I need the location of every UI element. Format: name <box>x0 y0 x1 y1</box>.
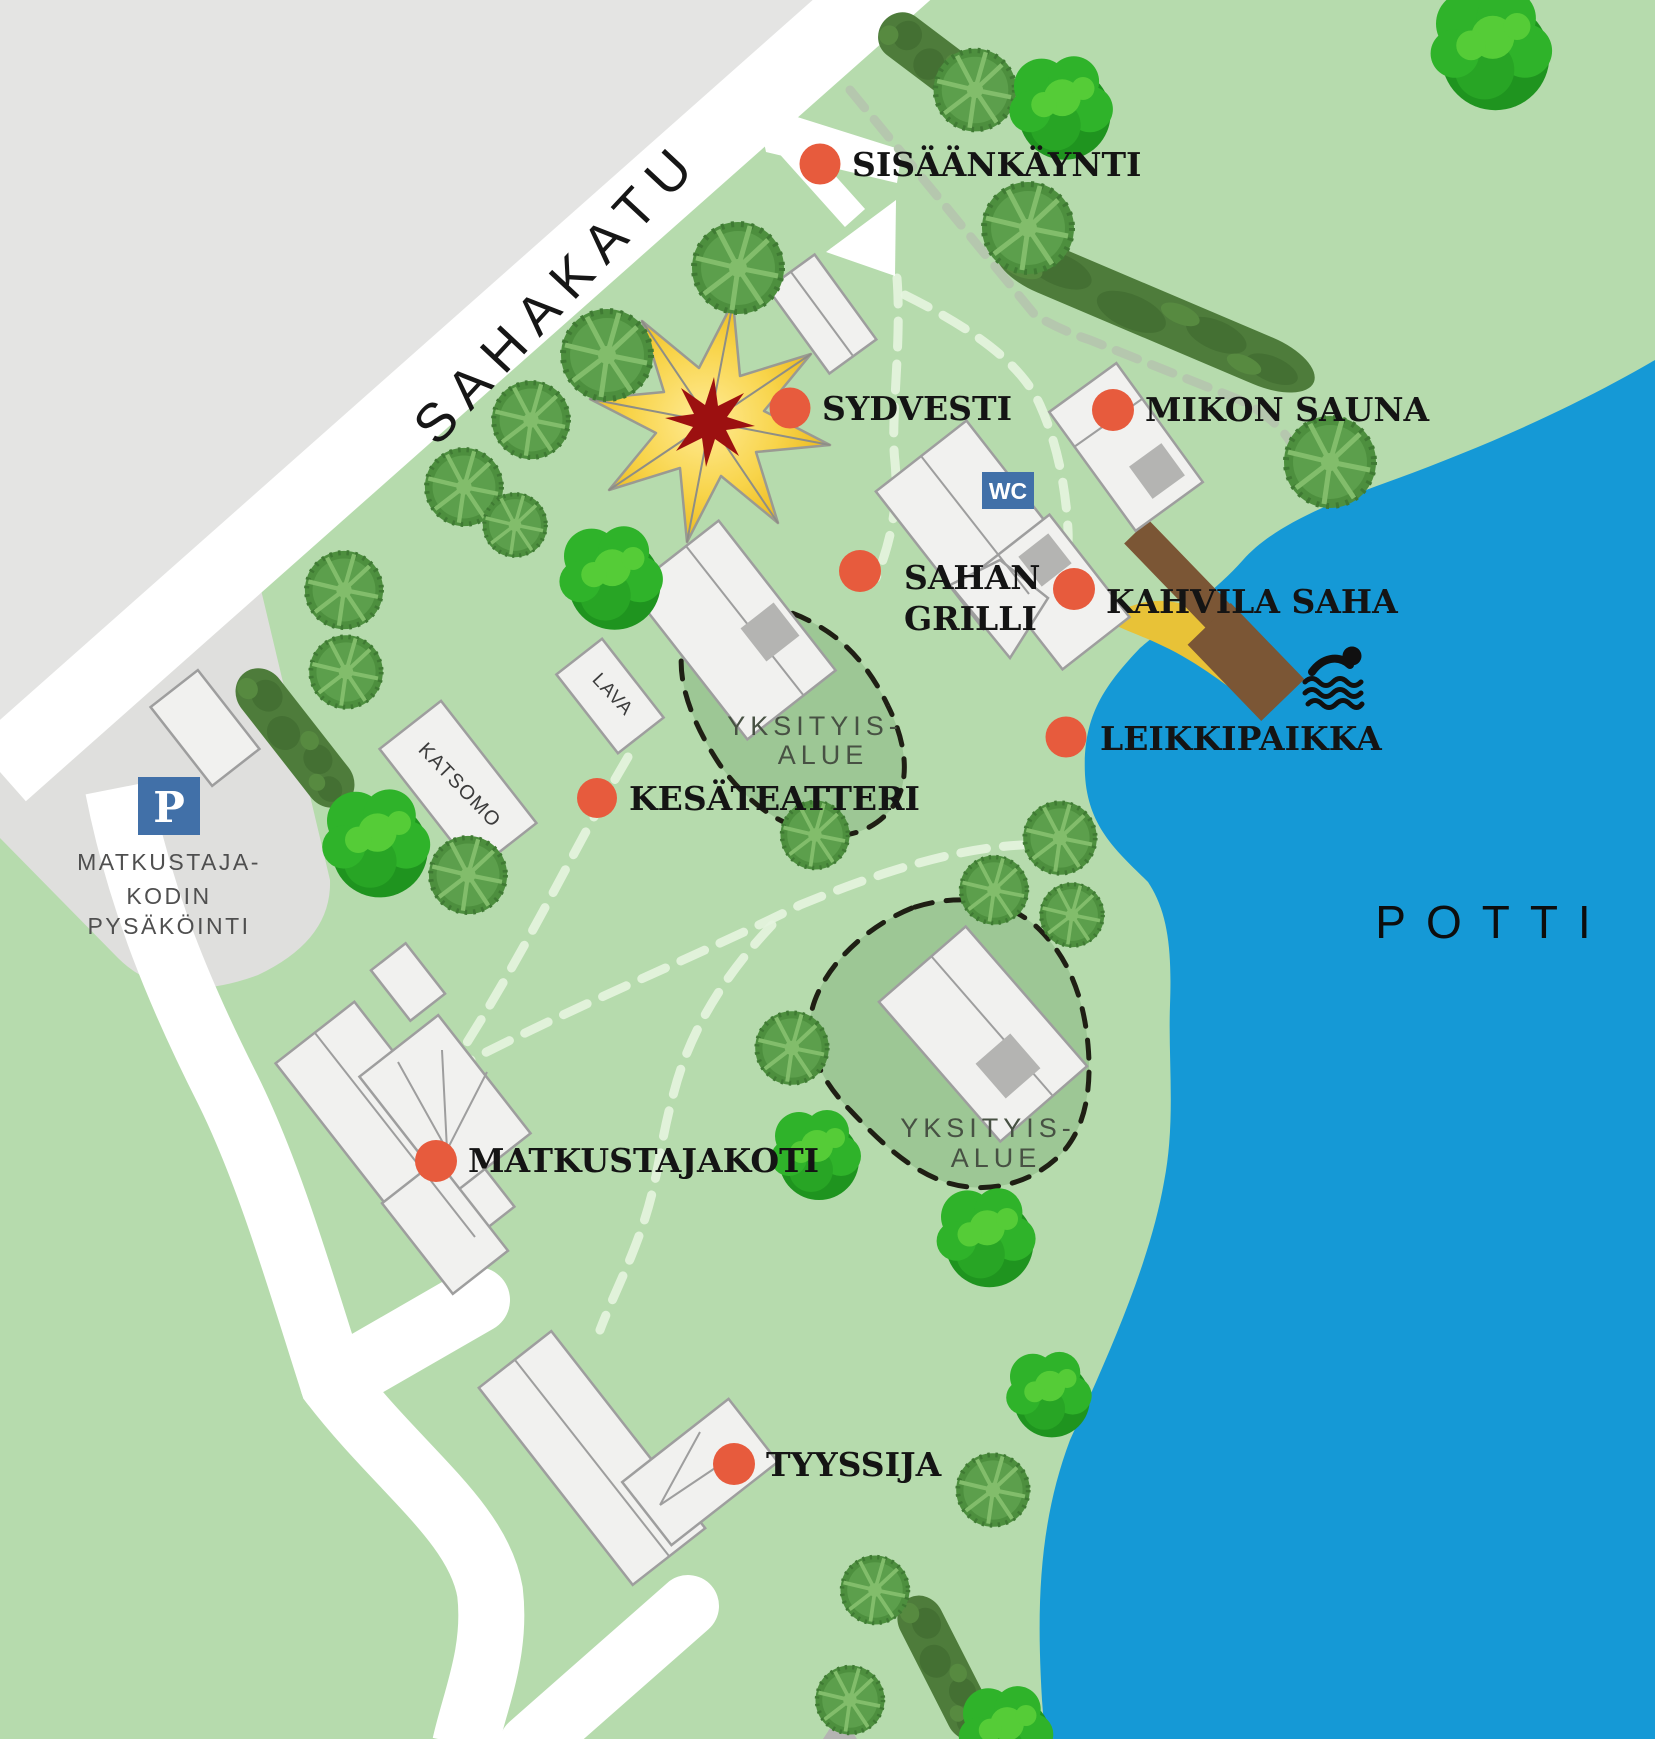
parking-label-line3: PYSÄKÖINTI <box>87 913 250 939</box>
label-mikon-sauna: MIKON SAUNA <box>1145 390 1430 429</box>
label-kahvila-saha: KAHVILA SAHA <box>1106 582 1398 621</box>
parking-label-line1: MATKUSTAJA- <box>77 849 261 875</box>
private-area-2-label-line2: ALUE <box>951 1143 1042 1173</box>
tree-icon <box>1023 801 1097 875</box>
label-tyyssija: TYYSSIJA <box>766 1445 942 1484</box>
tree-icon <box>1040 883 1104 947</box>
tree-icon <box>956 1453 1030 1527</box>
tree-icon <box>982 182 1074 274</box>
tree-icon <box>755 1011 829 1085</box>
tree-icon <box>429 836 507 914</box>
tree-icon <box>692 222 784 314</box>
parking-icon-letter: P <box>153 783 185 832</box>
tree-icon <box>841 1556 910 1625</box>
label-sahan-grilli-line2: GRILLI <box>904 599 1037 638</box>
tree-icon <box>1284 416 1376 508</box>
wc-sign-text: WC <box>989 478 1027 504</box>
tree-icon <box>305 551 383 629</box>
harbor-park-map: SAHAKATU <box>0 0 1655 1739</box>
parking-sign: P <box>138 777 200 835</box>
marker-sydvesti[interactable] <box>770 388 811 429</box>
private-area-1-label-line2: ALUE <box>778 740 869 770</box>
poi-matkustajakoti: MATKUSTAJAKOTI <box>415 1140 819 1182</box>
poi-kesateatteri: KESÄTEATTERI <box>577 778 920 818</box>
poi-tyyssija: TYYSSIJA <box>713 1443 942 1485</box>
private-area-2-label-line1: YKSITYIS- <box>900 1113 1076 1143</box>
water-name-label: POTTI <box>1375 896 1610 948</box>
marker-matkustajakoti[interactable] <box>415 1140 457 1182</box>
label-sahan-grilli-line1: SAHAN <box>904 558 1040 597</box>
tree-icon <box>483 493 547 557</box>
marker-kesateatteri[interactable] <box>577 778 617 818</box>
marker-leikkipaikka[interactable] <box>1046 717 1087 758</box>
tree-icon <box>561 309 653 401</box>
tree-icon <box>960 856 1029 925</box>
tree-icon <box>492 381 570 459</box>
marker-sahan-grilli[interactable] <box>839 550 881 592</box>
parking-label-line2: KODIN <box>126 883 211 909</box>
marker-tyyssija[interactable] <box>713 1443 755 1485</box>
label-sisaankaynti: SISÄÄNKÄYNTI <box>852 144 1142 184</box>
wc-sign: WC <box>982 472 1034 509</box>
marker-kahvila-saha[interactable] <box>1053 568 1095 610</box>
label-sydvesti: SYDVESTI <box>822 389 1012 428</box>
tree-icon <box>816 1666 885 1735</box>
tree-icon <box>309 635 383 709</box>
private-area-1-label-line1: YKSITYIS- <box>727 711 903 741</box>
label-kesateatteri: KESÄTEATTERI <box>629 778 920 818</box>
marker-sisaankaynti[interactable] <box>800 144 841 185</box>
marker-mikon-sauna[interactable] <box>1092 389 1134 431</box>
tree-icon <box>934 49 1017 132</box>
label-leikkipaikka: LEIKKIPAIKKA <box>1100 719 1382 758</box>
label-matkustajakoti: MATKUSTAJAKOTI <box>468 1141 819 1180</box>
